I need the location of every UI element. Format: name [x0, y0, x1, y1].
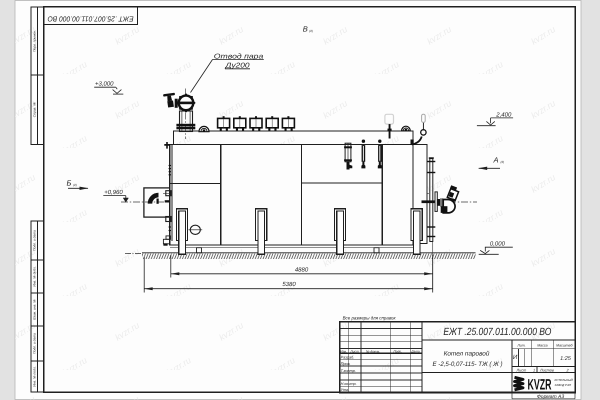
svg-text:ЗАВОД РЭП: ЗАВОД РЭП: [555, 383, 572, 387]
svg-text:Инв. № подл.: Инв. № подл.: [32, 366, 36, 387]
svg-text:Инв. № дубл.: Инв. № дубл.: [32, 266, 36, 286]
svg-text:Взам. инв. №: Взам. инв. №: [32, 299, 36, 320]
svg-text:ЕЖТ .25.007.011.00.000 ВО: ЕЖТ .25.007.011.00.000 ВО: [47, 14, 133, 23]
svg-text:Подп. и дата: Подп. и дата: [32, 230, 36, 251]
svg-text:Дата: Дата: [410, 349, 420, 353]
svg-text:Пров.: Пров.: [341, 362, 351, 366]
svg-text:Разраб.: Разраб.: [341, 356, 355, 360]
svg-text:4880: 4880: [295, 266, 309, 273]
svg-text:Все размеры для справок: Все размеры для справок: [343, 316, 397, 321]
svg-text:И: И: [513, 354, 518, 361]
svg-text:Изм.: Изм.: [340, 349, 347, 353]
svg-text:Масса: Масса: [537, 343, 547, 347]
svg-text:Утв.: Утв.: [341, 388, 350, 392]
svg-text:Котел паровой: Котел паровой: [444, 351, 490, 358]
svg-text:Масштаб: Масштаб: [556, 343, 573, 347]
svg-text:KVZR: KVZR: [528, 376, 552, 393]
svg-text:Перв. примен.: Перв. примен.: [32, 30, 36, 52]
svg-text:(2): (2): [309, 29, 313, 33]
svg-text:(2): (2): [500, 160, 504, 164]
svg-text:Лист: Лист: [349, 349, 359, 353]
svg-text:Подп.: Подп.: [394, 349, 403, 353]
svg-text:5380: 5380: [282, 281, 296, 288]
svg-text:2,400: 2,400: [495, 111, 512, 118]
svg-text:№ докум.: № докум.: [366, 349, 380, 353]
svg-text:А: А: [493, 155, 499, 164]
svg-text:Справ. №: Справ. №: [32, 102, 36, 117]
svg-text:1: 1: [533, 368, 535, 372]
svg-text:Подп. и дата: Подп. и дата: [32, 333, 36, 354]
svg-text:КОТЕЛЬНЫЙ: КОТЕЛЬНЫЙ: [555, 378, 574, 382]
svg-text:0,000: 0,000: [490, 240, 506, 247]
svg-text:Лист: Лист: [516, 368, 527, 372]
svg-text:В: В: [303, 25, 308, 34]
svg-text:ЕЖТ .25.007.011.00.000 ВО: ЕЖТ .25.007.011.00.000 ВО: [443, 327, 551, 338]
svg-text:Лит.: Лит.: [516, 343, 525, 347]
svg-text:Т.контр.: Т.контр.: [341, 369, 356, 373]
svg-text:Н.контр.: Н.контр.: [341, 382, 357, 386]
svg-text:Е -2,5-0,07-115- ТЖ ( Ж ): Е -2,5-0,07-115- ТЖ ( Ж ): [433, 361, 503, 368]
svg-text:1:25: 1:25: [560, 356, 572, 362]
svg-text:+3,000: +3,000: [95, 80, 114, 87]
svg-text:Листов: Листов: [539, 368, 554, 372]
svg-text:Б: Б: [67, 179, 72, 188]
svg-text:+0,960: +0,960: [104, 189, 123, 196]
svg-text:(2): (2): [73, 183, 77, 187]
